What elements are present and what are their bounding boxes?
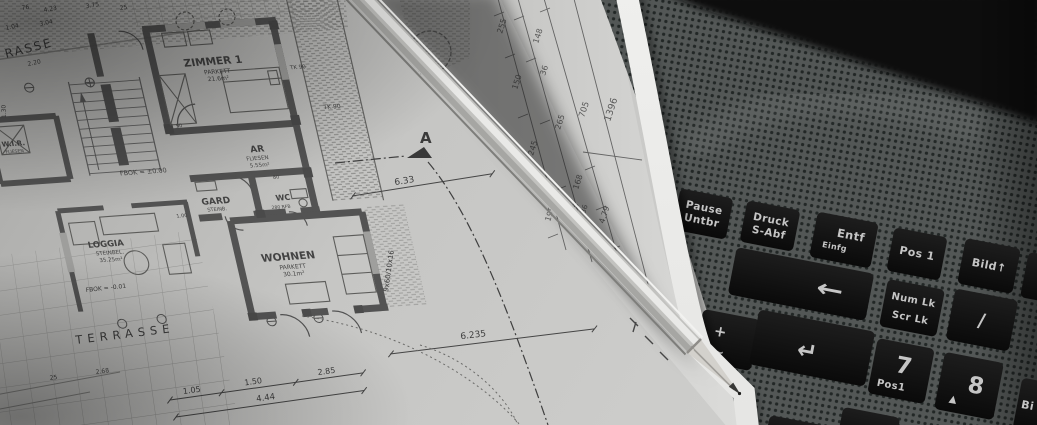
vignette-bottom-left [0,0,1037,425]
photo-blueprint-desk: ZIMMER 1 PARKETT 21.6m² AR FLIESEN 5.55m… [0,0,1037,425]
scene: ZIMMER 1 PARKETT 21.6m² AR FLIESEN 5.55m… [0,0,1037,425]
